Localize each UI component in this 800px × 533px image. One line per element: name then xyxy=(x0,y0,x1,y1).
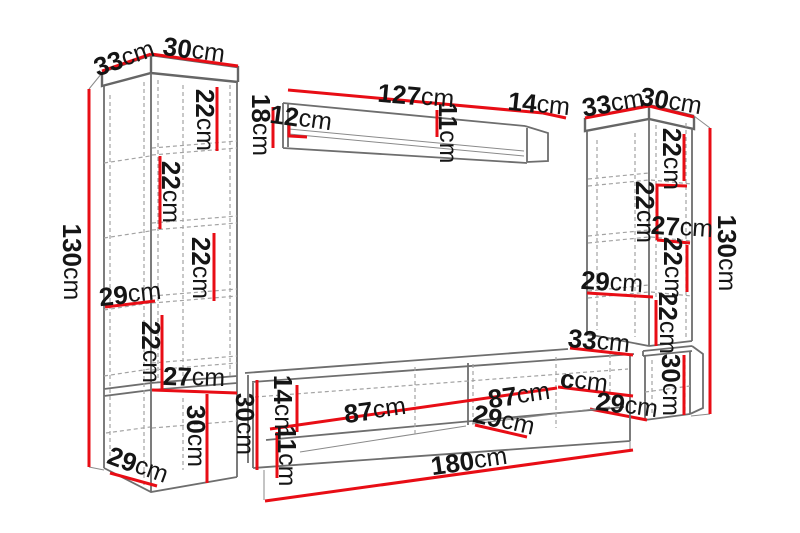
dim-label-left-width: 30cm xyxy=(161,31,227,69)
dim-label-right-29a: 29cm xyxy=(580,265,644,299)
dim-label-right-22d: 22cm xyxy=(653,292,683,354)
right-cabinet-dim-guides xyxy=(691,116,710,416)
dim-label-right-30b: 30cm xyxy=(656,354,686,416)
dim-label-right-depth: 33cm xyxy=(580,83,646,122)
dim-label-left-22b: 22cm xyxy=(156,161,186,223)
dim-label-shelf-11: 11cm xyxy=(433,103,463,164)
dim-label-left-30b: 30cm xyxy=(181,405,211,467)
dim-label-tv-33: 33cm xyxy=(566,323,631,359)
dim-label-tv-c: ccm xyxy=(558,363,609,399)
diagram-canvas: 33cm 30cm 130cm 22cm 22cm 22cm 29cm 22cm… xyxy=(0,0,800,533)
dim-label-right-width: 30cm xyxy=(638,81,705,121)
dim-label-left-22d: 22cm xyxy=(136,321,166,383)
dim-label-left-height: 130cm xyxy=(57,224,87,301)
dim-label-left-22a: 22cm xyxy=(190,89,220,151)
dim-label-left-22c: 22cm xyxy=(186,237,216,299)
dim-label-tv-180: 180cm xyxy=(429,441,509,481)
dim-label-shelf-14: 14cm xyxy=(506,86,571,122)
dim-label-left-29a: 29cm xyxy=(97,276,162,312)
dim-label-right-22c: 22cm xyxy=(658,237,688,299)
dim-label-tv-30: 30cm xyxy=(230,393,260,455)
dim-label-left-27: 27cm xyxy=(162,361,225,393)
left-cabinet-dim-guides xyxy=(89,73,104,470)
dim-label-shelf-12: 12cm xyxy=(268,99,334,137)
dim-label-left-29b: 29cm xyxy=(104,440,173,489)
dim-label-right-22a: 22cm xyxy=(657,128,687,190)
furniture-dimension-diagram: 33cm 30cm 130cm 22cm 22cm 22cm 29cm 22cm… xyxy=(0,0,800,533)
dimension-labels: 33cm 30cm 130cm 22cm 22cm 22cm 29cm 22cm… xyxy=(57,31,742,490)
dim-label-tv-11: 11cm xyxy=(272,426,302,487)
dim-label-tv-87a: 87cm xyxy=(342,391,408,429)
dim-label-right-height: 130cm xyxy=(712,215,742,292)
